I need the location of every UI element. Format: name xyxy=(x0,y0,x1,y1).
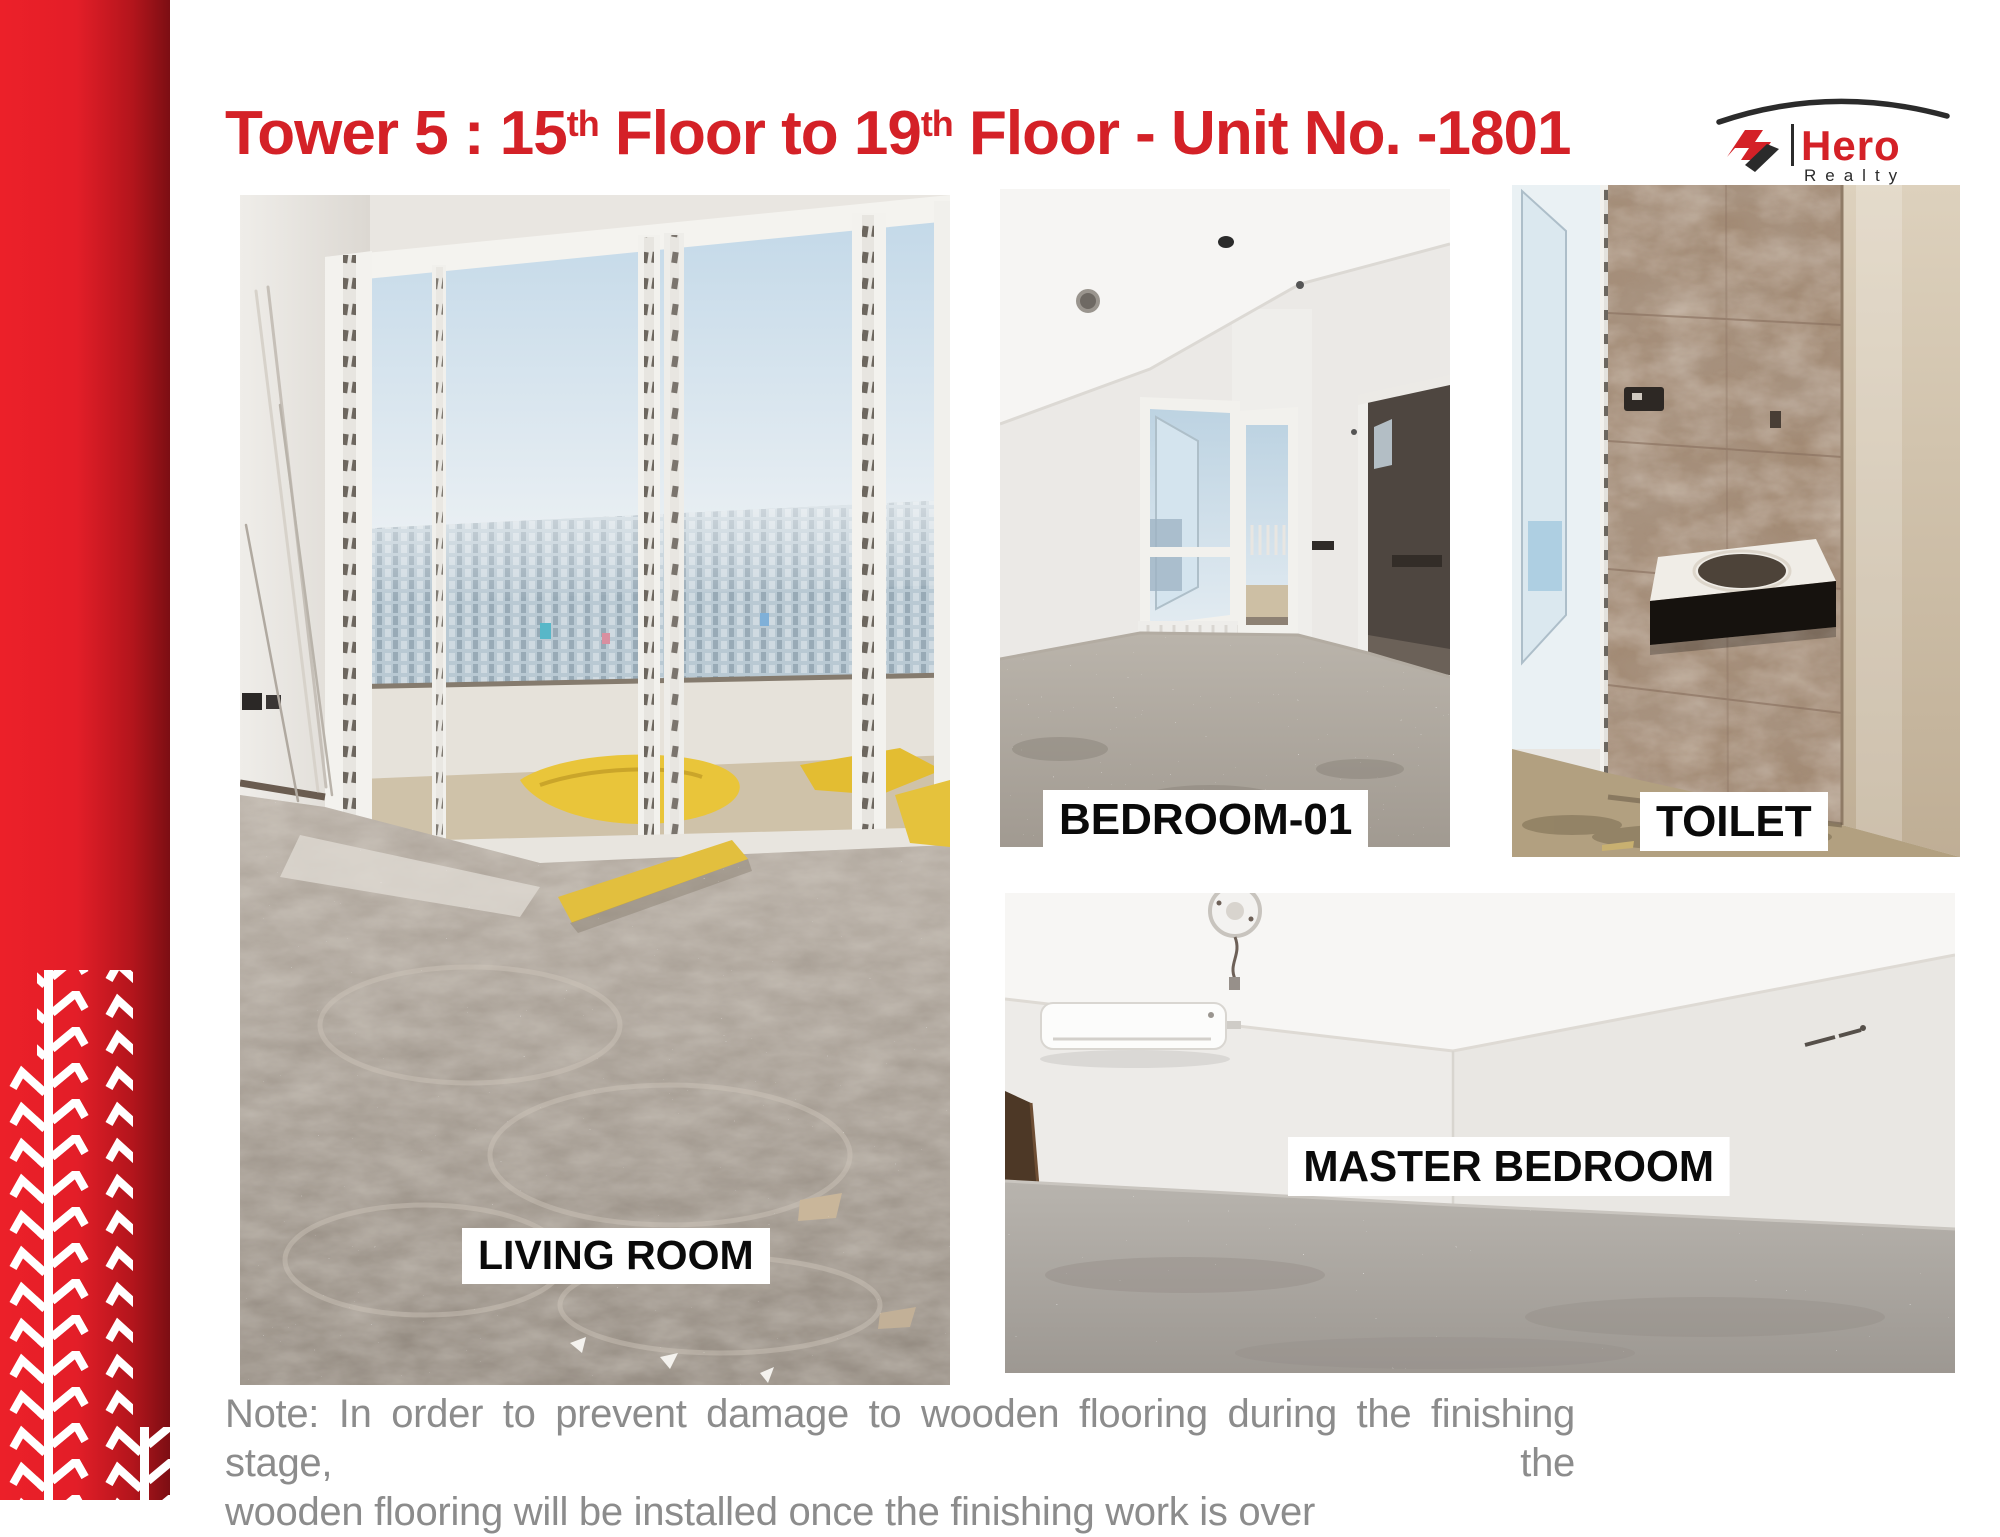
logo-sub-text: Realty xyxy=(1804,166,1906,185)
master-bedroom-label: MASTER BEDROOM xyxy=(1288,1137,1729,1196)
title-superscript-2: th xyxy=(921,103,953,144)
slide-title: Tower 5 : 15th Floor to 19th Floor - Uni… xyxy=(225,98,1725,169)
living-room-photo xyxy=(240,195,950,1385)
title-part-1: Tower 5 : 15 xyxy=(225,99,567,168)
title-part-2: Floor to 19 xyxy=(599,99,921,168)
title-superscript-1: th xyxy=(567,103,599,144)
note-line-1: Note: In order to prevent damage to wood… xyxy=(225,1390,1575,1488)
living-room-label: LIVING ROOM xyxy=(462,1228,770,1284)
left-red-ribbon xyxy=(0,0,170,1500)
wheat-pattern-decoration xyxy=(0,955,170,1500)
toilet-photo xyxy=(1512,185,1960,857)
toilet-label: TOILET xyxy=(1640,792,1828,851)
slide-note: Note: In order to prevent damage to wood… xyxy=(225,1390,1575,1537)
master-bedroom-photo xyxy=(1005,893,1955,1373)
note-line-2: wooden flooring will be installed once t… xyxy=(225,1488,1575,1537)
title-part-3: Floor - Unit No. -1801 xyxy=(953,99,1571,168)
bedroom-01-photo xyxy=(1000,189,1450,847)
bedroom-01-label: BEDROOM-01 xyxy=(1043,790,1368,849)
hero-realty-logo: Hero Realty xyxy=(1705,82,1960,187)
hero-realty-logo-icon: Hero Realty xyxy=(1705,82,1960,187)
logo-brand-text: Hero xyxy=(1801,122,1901,169)
